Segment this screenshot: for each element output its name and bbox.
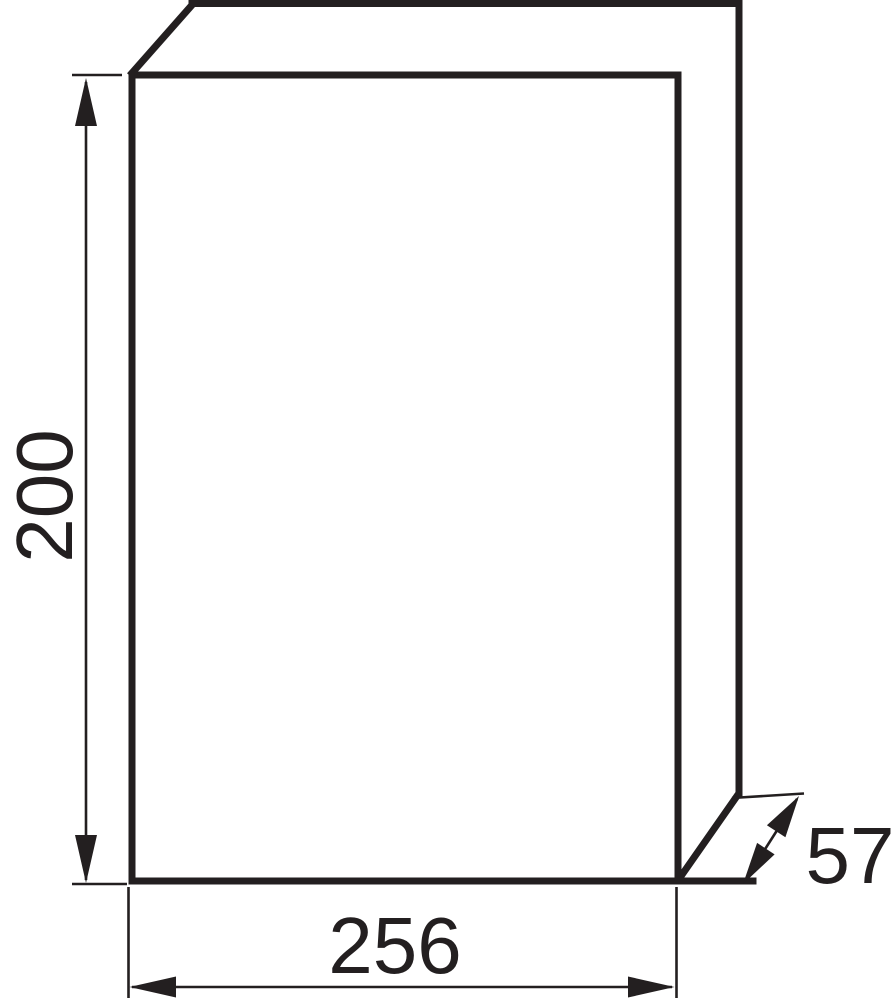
depth-arrowhead-lower bbox=[743, 843, 775, 884]
object-outline bbox=[132, 4, 753, 882]
width-arrowhead-right bbox=[628, 977, 675, 998]
dimension-drawing: 200 256 57 bbox=[0, 0, 895, 1000]
width-label: 256 bbox=[328, 901, 461, 990]
depth-arrowhead-upper bbox=[767, 796, 799, 837]
depth-extension-line-upper bbox=[732, 794, 804, 799]
height-arrowhead-up bbox=[75, 78, 97, 126]
height-arrowhead-down bbox=[75, 835, 97, 883]
bottom-right-slant-edge bbox=[679, 796, 737, 879]
drawing-canvas: 200 256 57 bbox=[0, 0, 895, 1000]
depth-label: 57 bbox=[806, 811, 895, 900]
height-label: 200 bbox=[0, 429, 89, 562]
top-left-slant-edge bbox=[132, 5, 192, 73]
front-face bbox=[132, 75, 678, 881]
width-arrowhead-left bbox=[130, 977, 177, 998]
